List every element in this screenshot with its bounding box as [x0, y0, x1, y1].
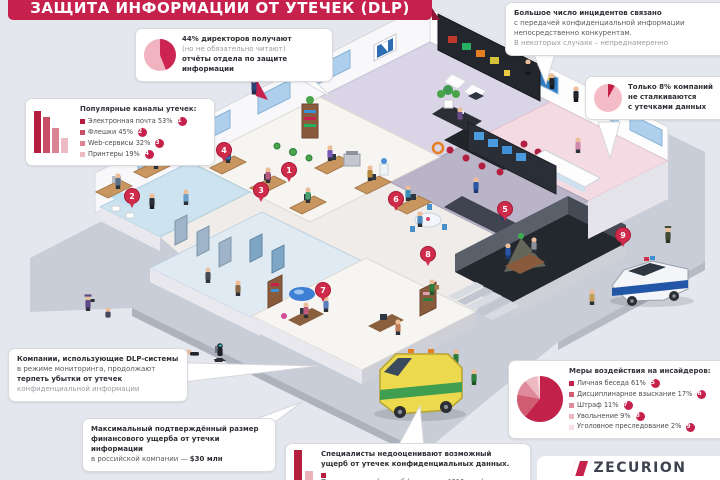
callout-directors-report: 44% директоров получают (но не обязатель…: [135, 28, 333, 82]
conference-table: [444, 128, 542, 176]
bar: [43, 117, 50, 153]
server-dome: [289, 287, 315, 301]
measure-item: Штраф 11%7: [569, 401, 711, 410]
pin-badge: 8: [636, 412, 645, 421]
pin-badge: 3: [155, 139, 164, 148]
pin-email: 1: [281, 162, 297, 178]
pin-dismissal: 8: [420, 246, 436, 262]
callout-only-8-percent: Только 8% компаний не сталкиваются с уте…: [585, 76, 720, 120]
damage-legend-item: Прогнозируемый ущерб (в среднем $310 тыс…: [321, 473, 509, 480]
measure-label: Уголовное преследование 2%: [577, 422, 681, 431]
callout-line: конфиденциальной информации: [17, 385, 179, 395]
interrogation-table: [505, 254, 545, 274]
crouching-accomplice: [105, 308, 110, 318]
page-title: ЗАЩИТА ИНФОРМАЦИИ ОТ УТЕЧЕК (DLP): [30, 0, 410, 17]
pin-flash-drives: 2: [124, 188, 140, 204]
brand-name: ZECURION: [594, 460, 687, 476]
water-cooler: [380, 158, 388, 175]
collection-guards: [429, 279, 476, 385]
lamp-light: [504, 238, 546, 272]
measure-label: Дисциплинарное взыскание 17%: [577, 390, 692, 399]
palm-plant: [437, 85, 460, 108]
bullet-icon: [569, 381, 574, 386]
hr-office-floor: [252, 258, 476, 370]
channels-title: Популярные каналы утечек:: [80, 105, 196, 115]
stairs: [448, 282, 520, 320]
spy-photographer: [85, 294, 95, 311]
callout-line: ущерб от утечек конфиденциальных данных.: [321, 460, 509, 470]
channels-bar-chart: [34, 111, 74, 153]
exec-office-floor: [320, 42, 550, 157]
bullet-icon: [569, 392, 574, 397]
callout-line: в режиме мониторинга, продолжают: [17, 365, 179, 375]
bullet-icon: [569, 414, 574, 419]
police-car: [610, 256, 694, 307]
infographic-root: ЗАЩИТА ИНФОРМАЦИИ ОТ УТЕЧЕК (DLP) 44% ди…: [0, 0, 720, 480]
callout-line: не сталкиваются: [628, 93, 713, 103]
bar: [61, 138, 68, 153]
bullet-icon: [569, 425, 574, 430]
callout-line: Специалисты недооценивают возможный: [321, 450, 509, 460]
interrogation-room: [455, 196, 626, 302]
channel-label: Web-сервисы 32%: [88, 139, 150, 148]
channel-item: Web-сервисы 32%3: [80, 139, 196, 148]
title-banner: ЗАЩИТА ИНФОРМАЦИИ ОТ УТЕЧЕК (DLP): [8, 0, 432, 20]
zecurion-footer: ZECURION: [537, 456, 720, 480]
scuba-diver: [214, 343, 226, 362]
pin-web-services: 3: [253, 182, 269, 198]
measures-pie-chart: [517, 376, 563, 422]
lamp: [518, 233, 524, 239]
copier: [344, 151, 360, 166]
insider-measures-box: Меры воздействия на инсайдеров: Личная б…: [508, 360, 720, 439]
callout-incidents-competitors: Большое число инцидентов связано с перед…: [505, 2, 720, 56]
pin-printers: 4: [216, 142, 232, 158]
bullet-icon: [569, 403, 574, 408]
callout-max-damage: Максимальный подтверждённый размер финан…: [82, 418, 276, 472]
server-racks: [175, 215, 315, 301]
window: [258, 80, 290, 114]
bullet-icon: [80, 152, 85, 157]
cash-van: [374, 349, 466, 421]
exec-desk: [432, 104, 482, 131]
measure-item: Личная беседа 61%5: [569, 379, 711, 388]
channel-item: Флешки 45%2: [80, 128, 196, 137]
pin-criminal-prosecution: 9: [615, 227, 631, 243]
leak-channels-box: Популярные каналы утечек: Электронная по…: [25, 98, 215, 166]
bullet-icon: [80, 130, 85, 135]
measure-label: Увольнение 9%: [577, 412, 631, 421]
measure-item: Дисциплинарное взыскание 17%6: [569, 390, 711, 399]
callout-line: непосредственно конкурентам.: [514, 29, 720, 39]
armchair: [464, 84, 486, 99]
callout-line: 44% директоров получают: [182, 35, 292, 45]
curb-edge2: [558, 262, 705, 350]
pin-badge: 5: [651, 379, 660, 388]
bathroom-floor: [100, 162, 250, 237]
damage-bar-forecast: [294, 450, 302, 480]
security-room-floor: [390, 142, 588, 241]
channel-label: Принтеры 19%: [88, 150, 140, 159]
zecurion-logo-icon: [571, 460, 588, 477]
pin-badge: 2: [138, 128, 147, 137]
callout-line: Только 8% компаний: [628, 83, 713, 93]
pedestrian: [589, 289, 594, 305]
callout-line: Большое число инцидентов связано: [514, 9, 720, 19]
world-map: [526, 62, 558, 94]
damage-amount: $30 млн: [190, 455, 223, 463]
directors-pie-chart: [144, 39, 176, 71]
callout-line: с передачей конфиденциальной информации: [514, 19, 720, 29]
channel-item: Электронная почта 53%1: [80, 117, 196, 126]
ship-painting: [374, 34, 396, 61]
callout-line: терпеть убытки от утечек: [17, 375, 179, 385]
measure-label: Личная беседа 61%: [577, 379, 646, 388]
coffee-table: [468, 92, 484, 100]
callout-line: отчёты отдела по защите: [182, 55, 292, 65]
callout-line: финансового ущерба от утечки информации: [91, 435, 267, 455]
channel-label: Электронная почта 53%: [88, 117, 173, 126]
callout-line: Компании, использующие DLP-системы: [17, 355, 179, 365]
server-room-floor: [150, 212, 372, 322]
bullet-icon: [80, 119, 85, 124]
measure-label: Штраф 11%: [577, 401, 619, 410]
callout-line: в российской компании — $30 млн: [91, 455, 267, 465]
measure-item: Увольнение 9%8: [569, 412, 711, 421]
damage-bar-chart: [294, 450, 313, 480]
bar: [52, 128, 59, 153]
pin-badge: 6: [697, 390, 706, 399]
callout-dlp-monitoring: Компании, использующие DLP-системы в реж…: [8, 348, 188, 402]
channel-label: Флешки 45%: [88, 128, 133, 137]
cactus-plants: [274, 143, 312, 161]
armchair: [444, 74, 466, 89]
bookshelf: [302, 96, 318, 138]
pin-badge: 7: [624, 401, 633, 410]
callout-line: информации: [182, 65, 292, 75]
pin-badge: 4: [145, 150, 154, 159]
callout-line: с утечками данных: [628, 103, 713, 113]
callout-line: В некоторых случаях – непреднамеренно: [514, 39, 720, 49]
pin-badge: 9: [686, 423, 695, 432]
security-desk: [444, 196, 526, 239]
bullet-icon: [80, 141, 85, 146]
pin-personal-talk: 5: [497, 201, 513, 217]
cafeteria-table: [410, 204, 447, 232]
hr-furniture: [268, 275, 436, 332]
damage-bar-actual-partial: [305, 471, 313, 480]
only8-pie-chart: [594, 84, 622, 112]
police-officer: [665, 226, 671, 243]
callout-line: (но не обязательно читают): [182, 45, 292, 55]
pin-fine: 7: [315, 282, 331, 298]
channel-item: Принтеры 19%4: [80, 150, 196, 159]
measures-title: Меры воздействия на инсайдеров:: [569, 367, 711, 377]
bar: [34, 111, 41, 153]
reception-counter: [530, 150, 600, 193]
life-ring: [433, 143, 443, 153]
callout-line: Максимальный подтверждённый размер: [91, 425, 267, 435]
pin-badge: 1: [178, 117, 187, 126]
measure-item: Уголовное преследование 2%9: [569, 422, 711, 431]
pin-disciplinary: 6: [388, 191, 404, 207]
security-monitor-wall: [468, 122, 556, 194]
callout-underestimate: Специалисты недооценивают возможный ущер…: [285, 443, 531, 480]
